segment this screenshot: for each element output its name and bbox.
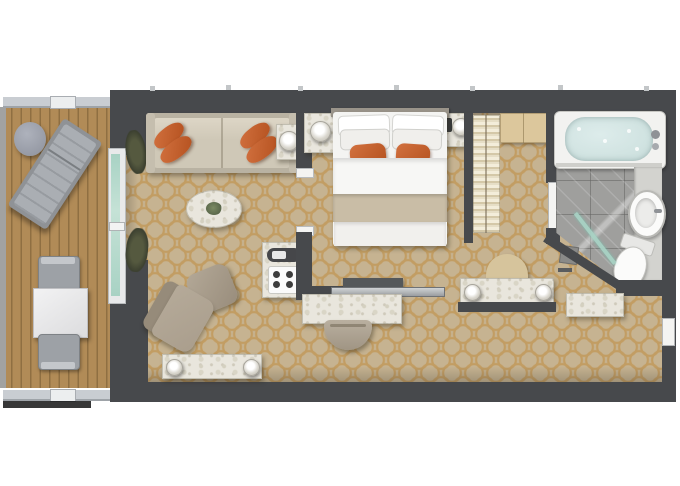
kettle [272, 251, 286, 259]
edge-tick [394, 85, 399, 90]
edge-tick [226, 85, 231, 90]
chair-backrest [41, 257, 75, 264]
vanity-half-wall [458, 302, 556, 312]
vanity-lamp-left [464, 284, 481, 301]
entry-door [662, 318, 675, 346]
cup [273, 281, 280, 288]
vanity-lamp-right [535, 284, 552, 301]
cup [273, 271, 280, 278]
chair-backrest [41, 362, 75, 369]
water-bubble [635, 147, 639, 151]
tub-handle [652, 143, 659, 150]
sink-basin [635, 198, 657, 228]
bed-runner [333, 194, 447, 222]
desk-chair-seam [330, 324, 366, 327]
suite-floor-plan [0, 0, 680, 486]
closet-shelf-divider [523, 113, 524, 143]
closet-rail [485, 115, 487, 233]
balcony-dining-table [33, 288, 88, 338]
tub-faucet [651, 130, 660, 139]
balcony-door-divider [109, 222, 125, 231]
entry-console [566, 293, 624, 317]
balcony-side-wall [0, 107, 6, 388]
edge-tick [470, 86, 475, 91]
plant-lower [124, 227, 150, 273]
wall-bottom [110, 382, 676, 402]
bedroom-closet-wall [464, 113, 473, 243]
bathtub [554, 111, 666, 169]
bed-duvet [333, 158, 447, 194]
bench-lamp-left [166, 359, 183, 376]
edge-tick [558, 85, 563, 90]
coffee-table-plant [206, 202, 222, 215]
water-bubble [627, 129, 631, 133]
bench-lamp-right [243, 359, 260, 376]
edge-tick [150, 86, 155, 91]
cup [286, 281, 293, 288]
closet-shelf [500, 113, 548, 143]
water-bubble [577, 127, 581, 131]
bathtub-water [565, 117, 653, 161]
water-bubble [603, 139, 607, 143]
partition-wall-lower [296, 232, 312, 292]
balcony-shadow [3, 401, 91, 408]
sofa-cushion-divider [221, 118, 223, 168]
balcony-chair-bottom [38, 334, 80, 370]
bathroom-sink [628, 190, 666, 238]
door-post-top [296, 168, 314, 178]
edge-tick [298, 86, 303, 91]
balcony-chair-top [38, 256, 80, 292]
bed-foot [334, 222, 446, 246]
nightstand-lamp-left [310, 121, 331, 142]
edge-tick [644, 86, 649, 91]
cup [286, 271, 293, 278]
railing-top-post [50, 96, 76, 109]
sink-faucet [654, 209, 662, 213]
bed [333, 112, 447, 246]
shower-control [558, 268, 572, 272]
